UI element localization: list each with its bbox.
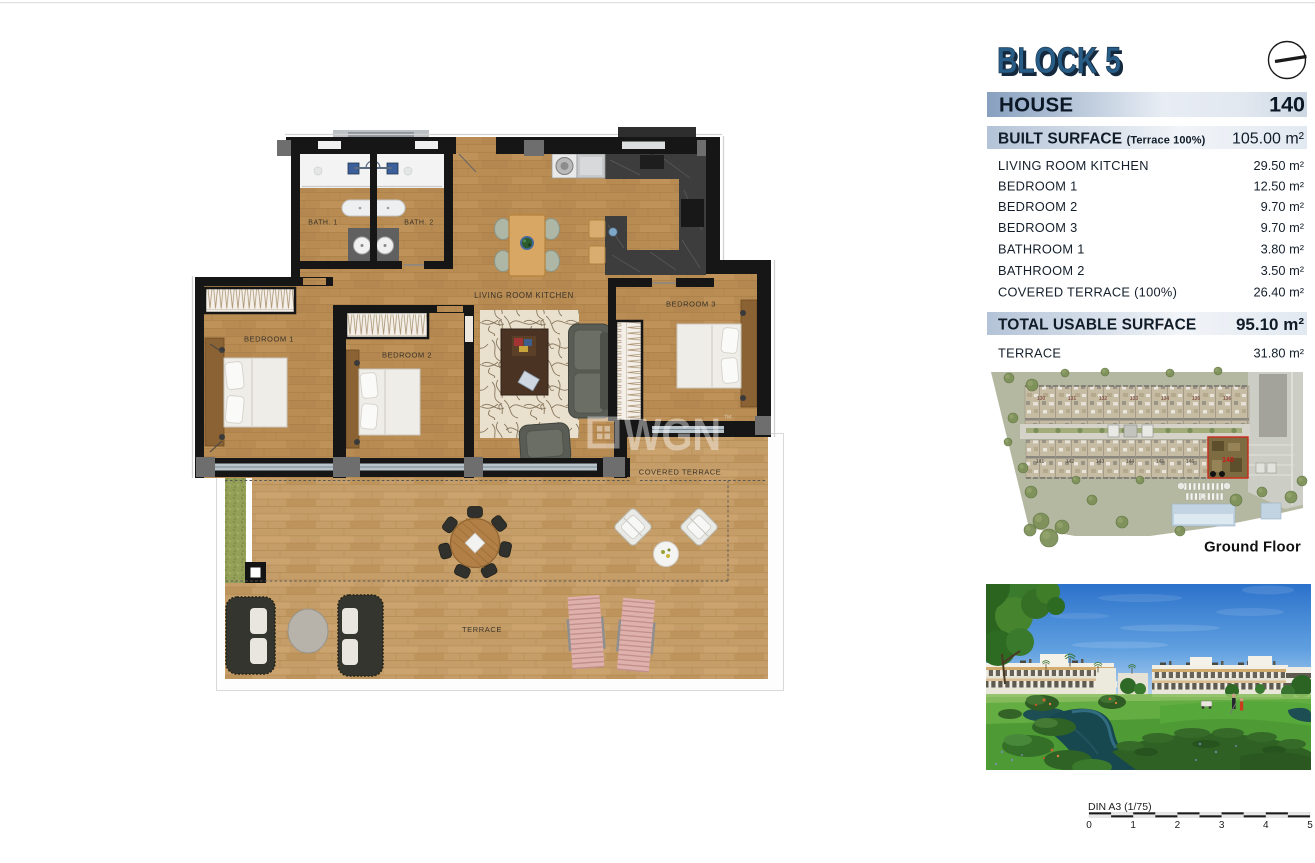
svg-text:BEDROOM 2: BEDROOM 2 — [998, 199, 1078, 214]
svg-text:BATHROOM 2: BATHROOM 2 — [998, 263, 1085, 278]
svg-text:133: 133 — [1130, 396, 1139, 402]
svg-text:BATHROOM 1: BATHROOM 1 — [998, 242, 1085, 257]
svg-text:BATH. 2: BATH. 2 — [404, 220, 433, 227]
svg-text:132: 132 — [1099, 396, 1108, 402]
svg-text:2: 2 — [1175, 820, 1181, 831]
svg-text:131: 131 — [1068, 396, 1077, 402]
svg-text:BATH. 1: BATH. 1 — [308, 220, 337, 227]
svg-text:145: 145 — [1156, 459, 1165, 465]
svg-text:144: 144 — [1126, 459, 1135, 465]
svg-text:95.10 m²: 95.10 m² — [1236, 315, 1304, 334]
svg-text:26.40 m²: 26.40 m² — [1253, 285, 1304, 300]
svg-text:TERRACE: TERRACE — [998, 346, 1061, 361]
svg-text:Ground Floor: Ground Floor — [1204, 540, 1301, 556]
svg-text:141: 141 — [1036, 459, 1045, 465]
svg-text:BEDROOM 2: BEDROOM 2 — [382, 351, 432, 360]
svg-text:LIVING ROOM KITCHEN: LIVING ROOM KITCHEN — [474, 291, 574, 300]
svg-text:146: 146 — [1186, 459, 1195, 465]
svg-text:143: 143 — [1096, 459, 1105, 465]
svg-text:140: 140 — [1269, 93, 1305, 117]
svg-text:134: 134 — [1161, 396, 1170, 402]
svg-text:0: 0 — [1086, 820, 1092, 831]
svg-text:BEDROOM 1: BEDROOM 1 — [998, 179, 1078, 194]
svg-text:105.00 m²: 105.00 m² — [1232, 131, 1305, 148]
svg-text:COVERED TERRACE: COVERED TERRACE — [639, 468, 721, 477]
svg-text:BLOCK 5: BLOCK 5 — [997, 40, 1121, 81]
svg-text:130: 130 — [1037, 396, 1046, 402]
svg-text:TERRACE: TERRACE — [462, 625, 502, 634]
svg-text:5: 5 — [1307, 820, 1313, 831]
svg-text:DIN A3 (1/75): DIN A3 (1/75) — [1088, 801, 1152, 813]
svg-text:COVERED TERRACE (100%): COVERED TERRACE (100%) — [998, 285, 1177, 300]
svg-text:BEDROOM 3: BEDROOM 3 — [666, 300, 716, 309]
svg-text:3: 3 — [1219, 820, 1225, 831]
svg-text:1: 1 — [1130, 820, 1136, 831]
svg-text:3.80 m²: 3.80 m² — [1261, 242, 1305, 257]
svg-text:TOTAL USABLE SURFACE: TOTAL USABLE SURFACE — [998, 317, 1196, 334]
svg-text:3.50 m²: 3.50 m² — [1261, 263, 1305, 278]
svg-text:9.70 m²: 9.70 m² — [1261, 199, 1305, 214]
svg-text:140: 140 — [1222, 457, 1234, 464]
svg-text:BEDROOM 1: BEDROOM 1 — [244, 335, 294, 344]
svg-text:135: 135 — [1192, 396, 1201, 402]
svg-text:HOUSE: HOUSE — [999, 94, 1073, 117]
svg-text:12.50 m²: 12.50 m² — [1253, 179, 1304, 194]
svg-text:31.80 m²: 31.80 m² — [1253, 346, 1304, 361]
svg-text:136: 136 — [1223, 396, 1232, 402]
svg-text:™: ™ — [723, 413, 732, 423]
svg-text:142: 142 — [1066, 459, 1075, 465]
svg-text:9.70 m²: 9.70 m² — [1261, 220, 1305, 235]
svg-text:LIVING ROOM KITCHEN: LIVING ROOM KITCHEN — [998, 158, 1149, 173]
svg-text:BEDROOM 3: BEDROOM 3 — [998, 220, 1078, 235]
svg-text:29.50 m²: 29.50 m² — [1253, 158, 1304, 173]
svg-text:WGN: WGN — [624, 409, 721, 460]
svg-text:4: 4 — [1263, 820, 1269, 831]
